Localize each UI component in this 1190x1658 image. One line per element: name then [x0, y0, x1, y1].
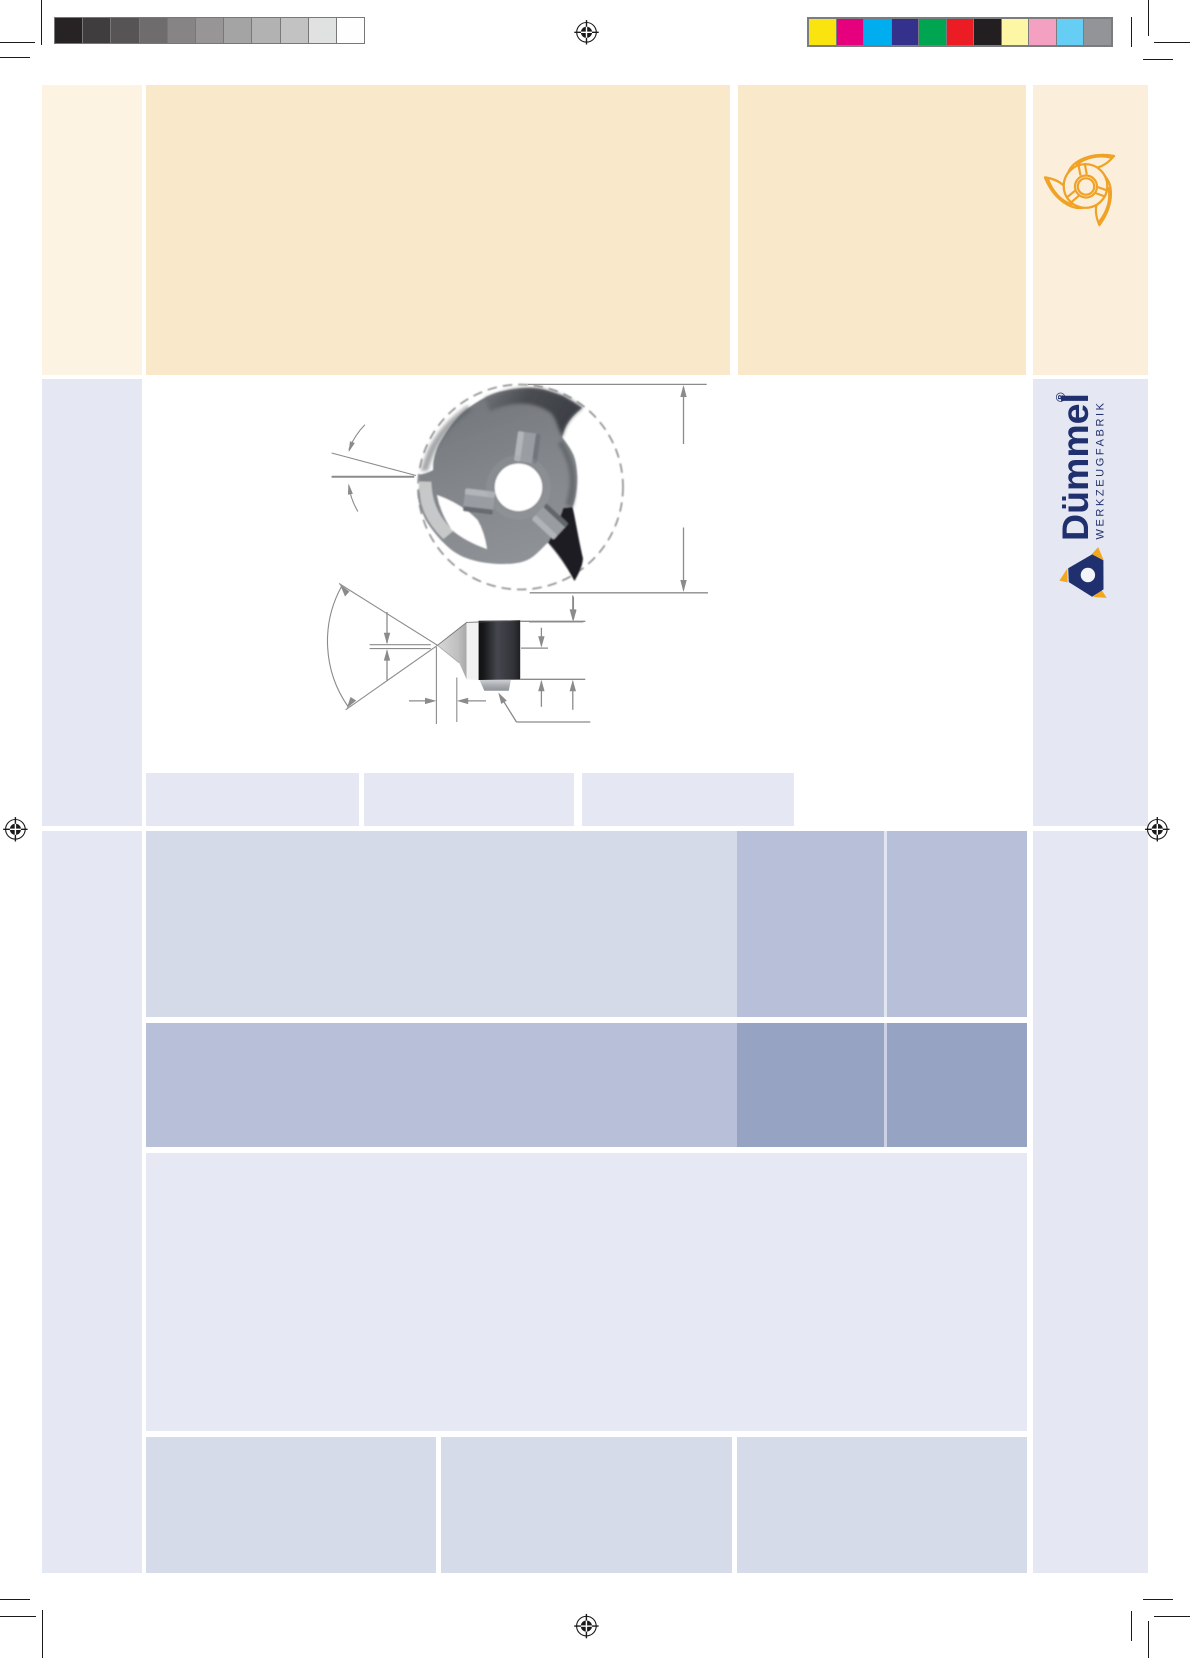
- svg-text:®: ®: [1053, 392, 1068, 402]
- svg-text:Dümmel: Dümmel: [1054, 393, 1096, 541]
- svg-text:WERKZEUGFABRIK: WERKZEUGFABRIK: [1095, 400, 1107, 539]
